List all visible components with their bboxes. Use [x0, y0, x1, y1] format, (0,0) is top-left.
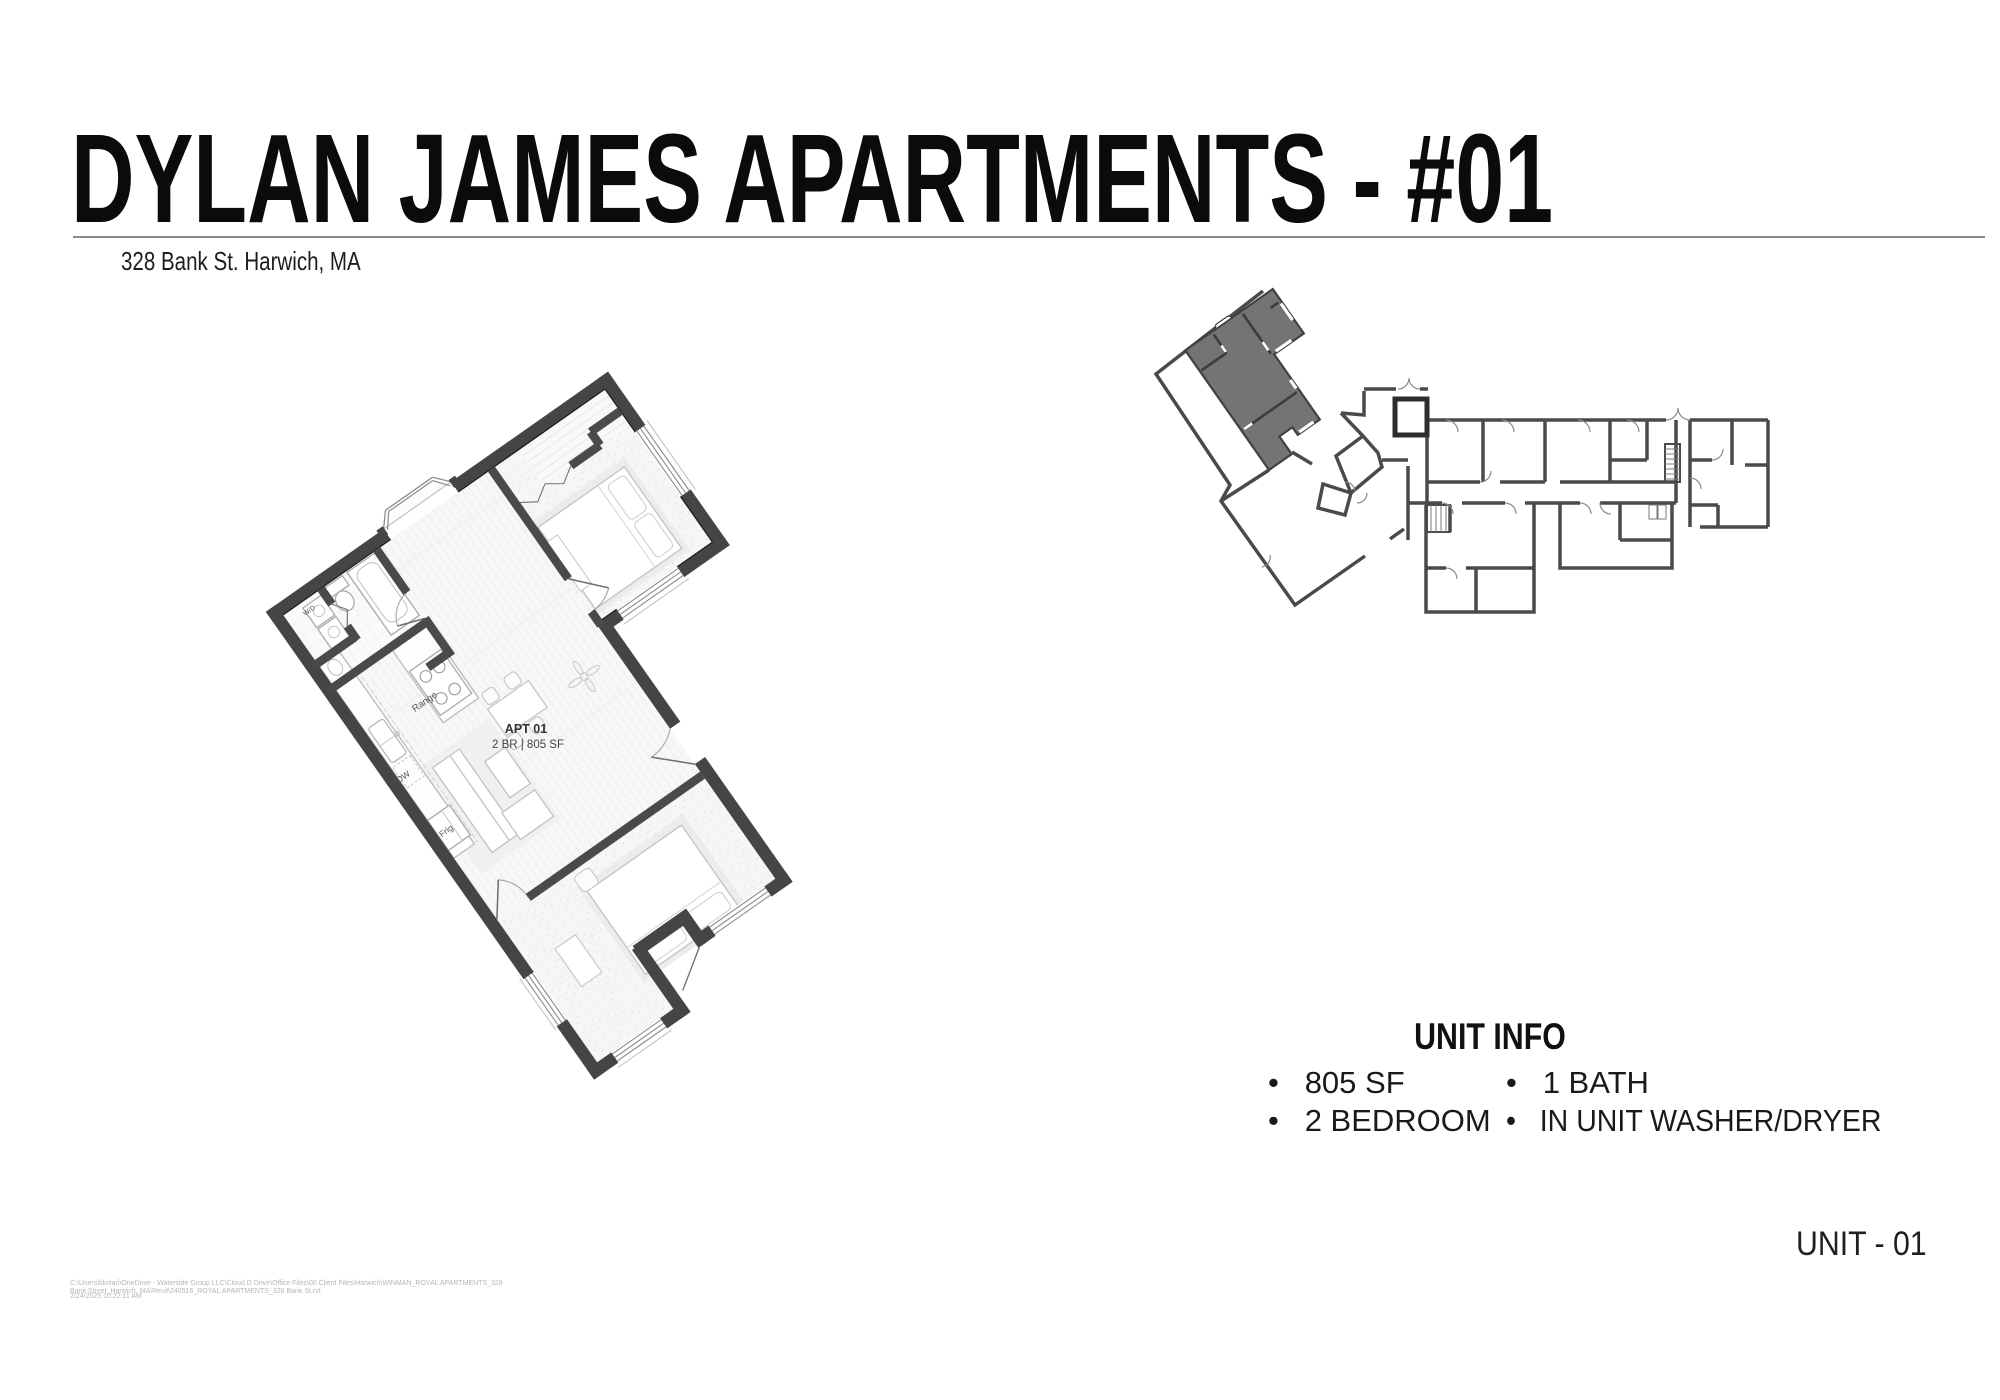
- svg-text:2 BR | 805 SF: 2 BR | 805 SF: [492, 739, 564, 751]
- svg-text:APT 01: APT 01: [505, 722, 547, 736]
